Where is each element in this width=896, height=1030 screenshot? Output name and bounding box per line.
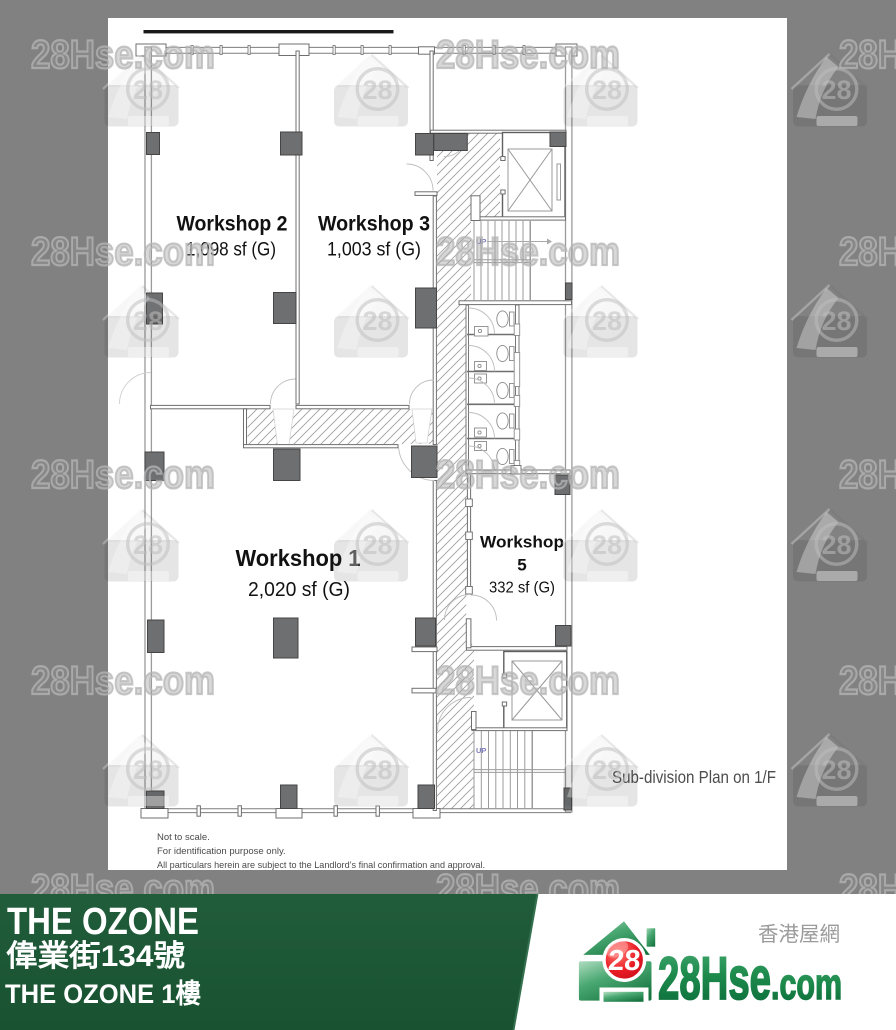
svg-text:香港屋網: 香港屋網: [758, 923, 840, 946]
svg-text:THE OZONE: THE OZONE: [7, 901, 199, 943]
svg-text:28Hse: 28Hse: [658, 945, 771, 1012]
svg-text:.com: .com: [771, 960, 842, 1009]
svg-text:偉業街134號: 偉業街134號: [6, 940, 185, 973]
svg-text:28: 28: [607, 945, 641, 977]
svg-text:THE OZONE 1樓: THE OZONE 1樓: [5, 979, 201, 1009]
